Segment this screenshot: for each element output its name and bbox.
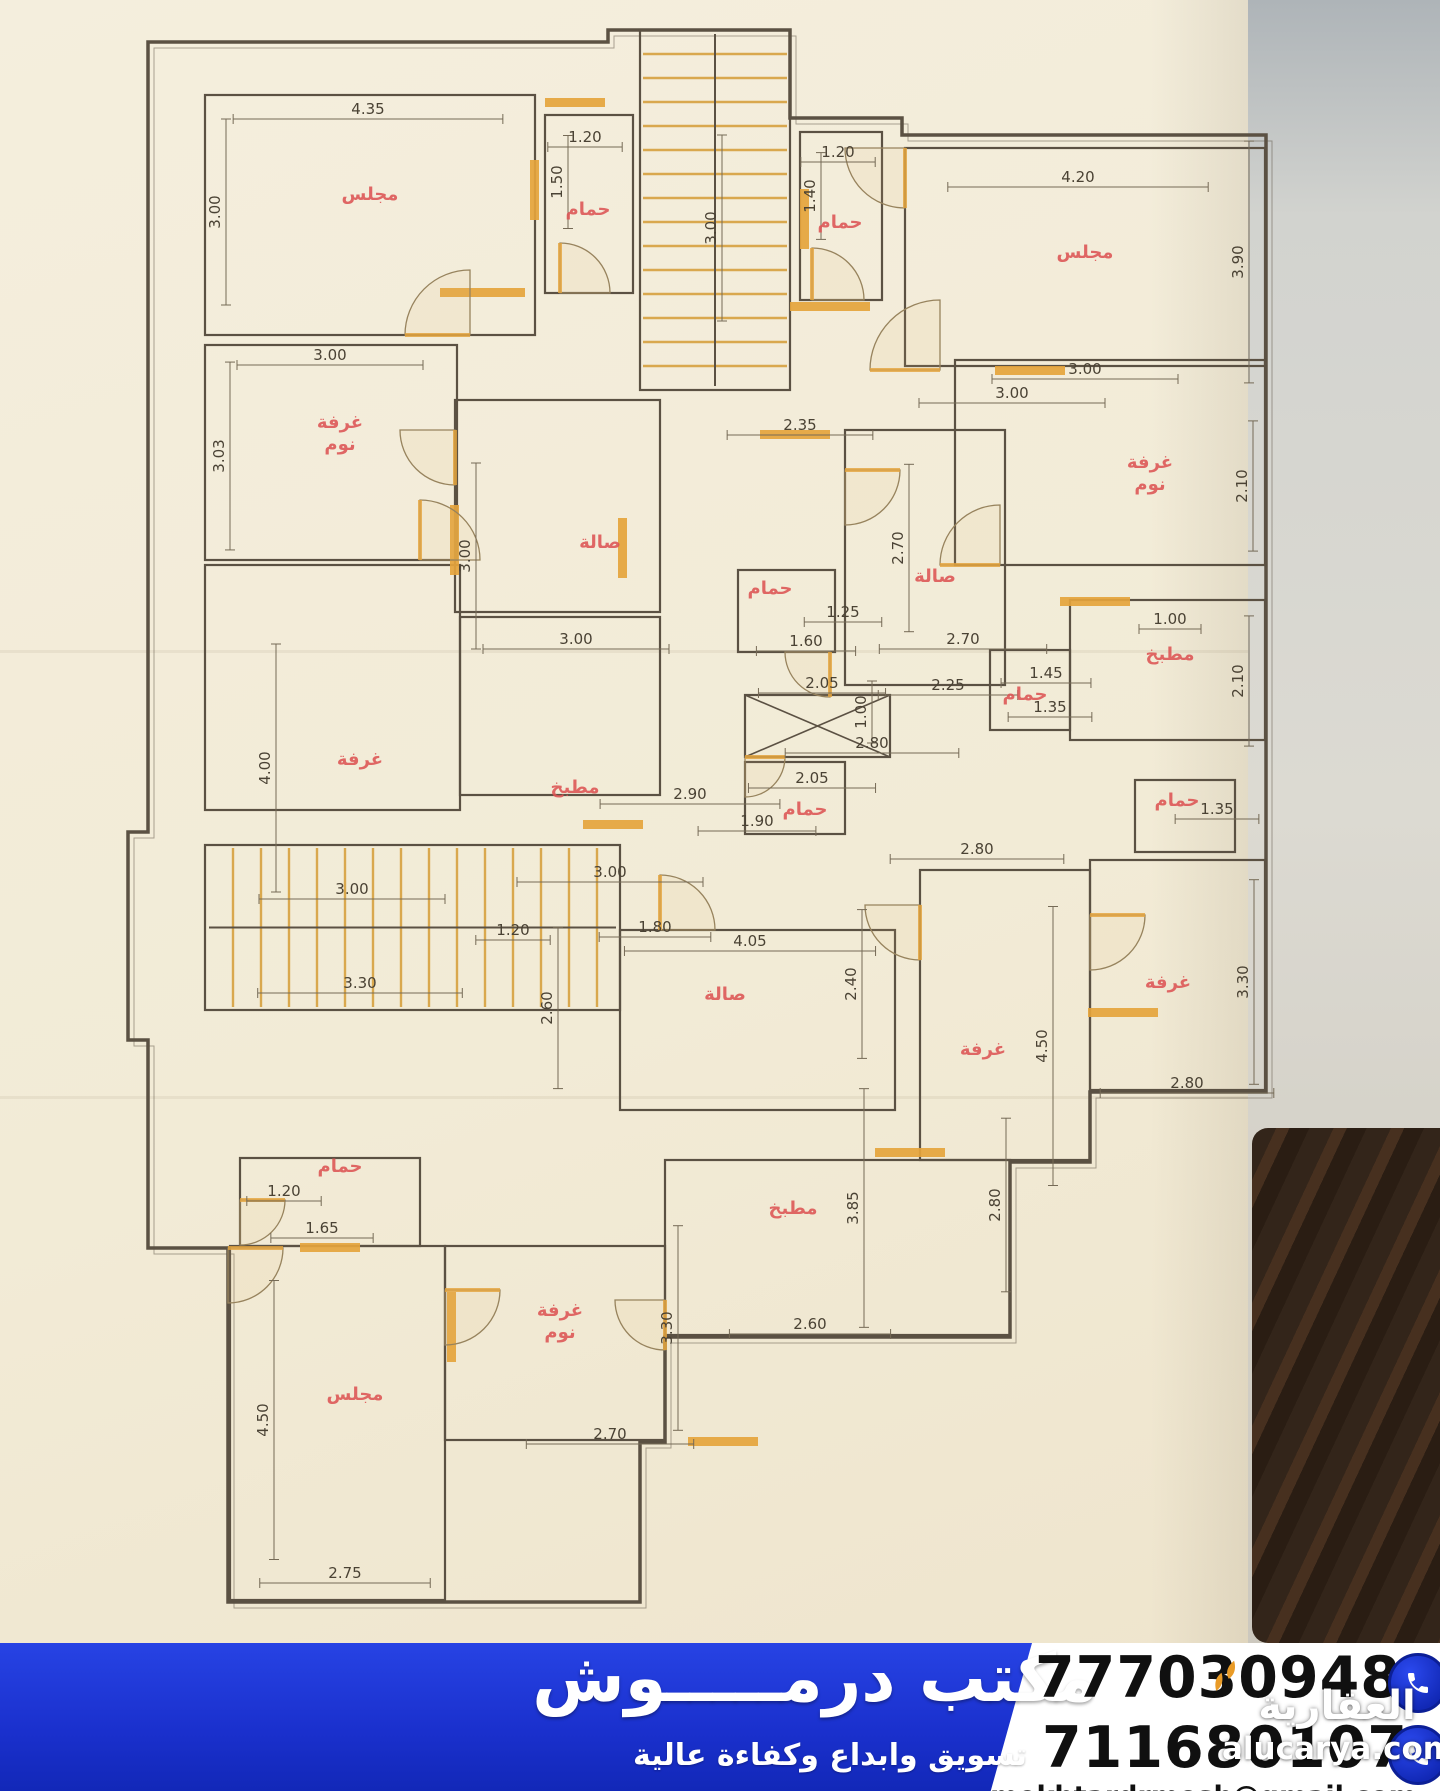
plan-outline bbox=[128, 30, 1266, 1602]
door-swing bbox=[560, 243, 610, 293]
window-sill bbox=[790, 302, 870, 311]
window-sill bbox=[688, 1437, 758, 1446]
dimension-text: 4.35 bbox=[351, 100, 384, 118]
dimension-text: 2.40 bbox=[842, 967, 860, 1000]
floor-plan-drawing: 4.353.001.201.503.001.201.404.203.903.00… bbox=[0, 0, 1440, 1791]
room-wall bbox=[920, 870, 1090, 1160]
dimension-text: 2.80 bbox=[855, 734, 888, 752]
dimension-text: 1.00 bbox=[852, 695, 870, 728]
room-wall bbox=[665, 1160, 1010, 1335]
room-label: حمام bbox=[818, 212, 863, 233]
dimension-text: 2.05 bbox=[795, 769, 828, 787]
room-label: غرفة bbox=[1145, 972, 1191, 993]
dimension-text: 2.75 bbox=[328, 1564, 361, 1582]
dimension-text: 3.30 bbox=[658, 1311, 676, 1344]
dimension-text: 1.20 bbox=[267, 1182, 300, 1200]
door-swing bbox=[445, 1290, 500, 1345]
dimension-text: 3.00 bbox=[313, 346, 346, 364]
dimension-text: 1.20 bbox=[496, 921, 529, 939]
room-label: مطبخ bbox=[1146, 644, 1195, 665]
dimension-text: 1.90 bbox=[740, 812, 773, 830]
window-sill bbox=[583, 820, 643, 829]
window-sill bbox=[995, 366, 1065, 375]
dimension-text: 2.60 bbox=[793, 1315, 826, 1333]
window-sill bbox=[545, 98, 605, 107]
watermark-leaf-icon bbox=[1200, 1651, 1246, 1697]
room-label: صالة bbox=[914, 566, 956, 587]
dimension-text: 2.80 bbox=[960, 840, 993, 858]
window-sill bbox=[1088, 1008, 1158, 1017]
dimension-text: 4.05 bbox=[733, 932, 766, 950]
dimension-text: 3.85 bbox=[844, 1191, 862, 1224]
room-label: مجلس bbox=[1057, 242, 1114, 263]
dimension-text: 2.10 bbox=[1233, 469, 1251, 502]
room-label: حمام bbox=[566, 199, 611, 220]
dimension-text: 4.50 bbox=[1033, 1029, 1051, 1062]
dimension-text: 1.45 bbox=[1029, 664, 1062, 682]
room-wall bbox=[455, 400, 660, 612]
door-swing bbox=[228, 1248, 283, 1303]
dimension-text: 1.20 bbox=[568, 128, 601, 146]
dimension-text: 1.35 bbox=[1200, 800, 1233, 818]
dimension-text: 2.10 bbox=[1229, 664, 1247, 697]
door-swing bbox=[865, 905, 920, 960]
door-swing bbox=[940, 505, 1000, 565]
room-label: غرفةنوم bbox=[537, 1300, 583, 1343]
watermark-domain: alucarya.com bbox=[1222, 1731, 1432, 1767]
dimension-text: 1.60 bbox=[789, 632, 822, 650]
room-label: مجلس bbox=[342, 184, 399, 205]
dimension-text: 1.50 bbox=[548, 165, 566, 198]
dimension-text: 2.35 bbox=[783, 416, 816, 434]
dimension-text: 2.05 bbox=[805, 674, 838, 692]
dimension-text: 3.00 bbox=[593, 863, 626, 881]
dimension-text: 1.80 bbox=[638, 918, 671, 936]
room-label: صالة bbox=[579, 532, 621, 553]
dimension-text: 3.00 bbox=[559, 630, 592, 648]
email-address: mekhtardrmosh@gmail.com bbox=[990, 1781, 1410, 1791]
dimension-text: 1.20 bbox=[821, 143, 854, 161]
room-label: مجلس bbox=[327, 1384, 384, 1405]
dimension-text: 1.40 bbox=[801, 179, 819, 212]
dimension-text: 3.00 bbox=[456, 539, 474, 572]
door-swing bbox=[1090, 915, 1145, 970]
room-label: حمام bbox=[1155, 790, 1200, 811]
dimension-text: 3.00 bbox=[702, 211, 720, 244]
door-swing bbox=[400, 430, 455, 485]
room-wall bbox=[205, 565, 460, 810]
dimension-text: 1.25 bbox=[826, 603, 859, 621]
room-label: غرفةنوم bbox=[1127, 452, 1173, 495]
dimension-text: 2.80 bbox=[986, 1188, 1004, 1221]
window-sill bbox=[530, 160, 539, 220]
dimension-text: 2.70 bbox=[593, 1425, 626, 1443]
door-swing bbox=[812, 248, 864, 300]
room-label: حمام bbox=[783, 799, 828, 820]
dimension-text: 3.00 bbox=[995, 384, 1028, 402]
door-swing bbox=[745, 757, 785, 797]
room-wall bbox=[445, 1246, 665, 1440]
room-label: حمام bbox=[748, 578, 793, 599]
dimension-text: 1.00 bbox=[1153, 610, 1186, 628]
dimension-text: 3.30 bbox=[1234, 965, 1252, 998]
window-sill bbox=[1060, 597, 1130, 606]
room-label: مطبخ bbox=[769, 1198, 818, 1219]
room-label: حمام bbox=[318, 1156, 363, 1177]
door-swing bbox=[870, 300, 940, 370]
dimension-text: 2.60 bbox=[538, 991, 556, 1024]
plan-outline-inner bbox=[134, 36, 1272, 1608]
dimension-text: 2.25 bbox=[931, 676, 964, 694]
watermark-name: العقارية bbox=[1252, 1683, 1422, 1729]
dimension-text: 3.90 bbox=[1229, 245, 1247, 278]
dimension-text: 2.70 bbox=[889, 531, 907, 564]
dimension-text: 2.80 bbox=[1170, 1074, 1203, 1092]
agency-banner: مكتب درمـــــوش تسويق وابداع وكفاءة عالي… bbox=[0, 1643, 1440, 1791]
window-sill bbox=[875, 1148, 945, 1157]
room-label: حمام bbox=[1003, 684, 1048, 705]
room-wall bbox=[620, 930, 895, 1110]
dimension-text: 3.00 bbox=[335, 880, 368, 898]
dimension-text: 2.70 bbox=[946, 630, 979, 648]
dimension-text: 2.90 bbox=[673, 785, 706, 803]
window-sill bbox=[300, 1243, 360, 1252]
door-swing bbox=[405, 270, 470, 335]
dimension-text: 3.00 bbox=[1068, 360, 1101, 378]
room-label: صالة bbox=[704, 984, 746, 1005]
room-label: مطبخ bbox=[551, 777, 600, 798]
door-swing bbox=[845, 470, 900, 525]
room-label: غرفة bbox=[337, 749, 383, 770]
dimension-text: 3.00 bbox=[206, 195, 224, 228]
dimension-text: 3.03 bbox=[210, 439, 228, 472]
dimension-text: 3.30 bbox=[343, 974, 376, 992]
room-label: غرفة bbox=[960, 1039, 1006, 1060]
room-label: غرفةنوم bbox=[317, 412, 363, 455]
photo-of-floor-plan: 4.353.001.201.503.001.201.404.203.903.00… bbox=[0, 0, 1440, 1791]
dimension-text: 4.20 bbox=[1061, 168, 1094, 186]
dimension-text: 1.65 bbox=[305, 1219, 338, 1237]
room-wall bbox=[205, 95, 535, 335]
dimension-text: 4.00 bbox=[256, 751, 274, 784]
dimension-text: 4.50 bbox=[254, 1403, 272, 1436]
